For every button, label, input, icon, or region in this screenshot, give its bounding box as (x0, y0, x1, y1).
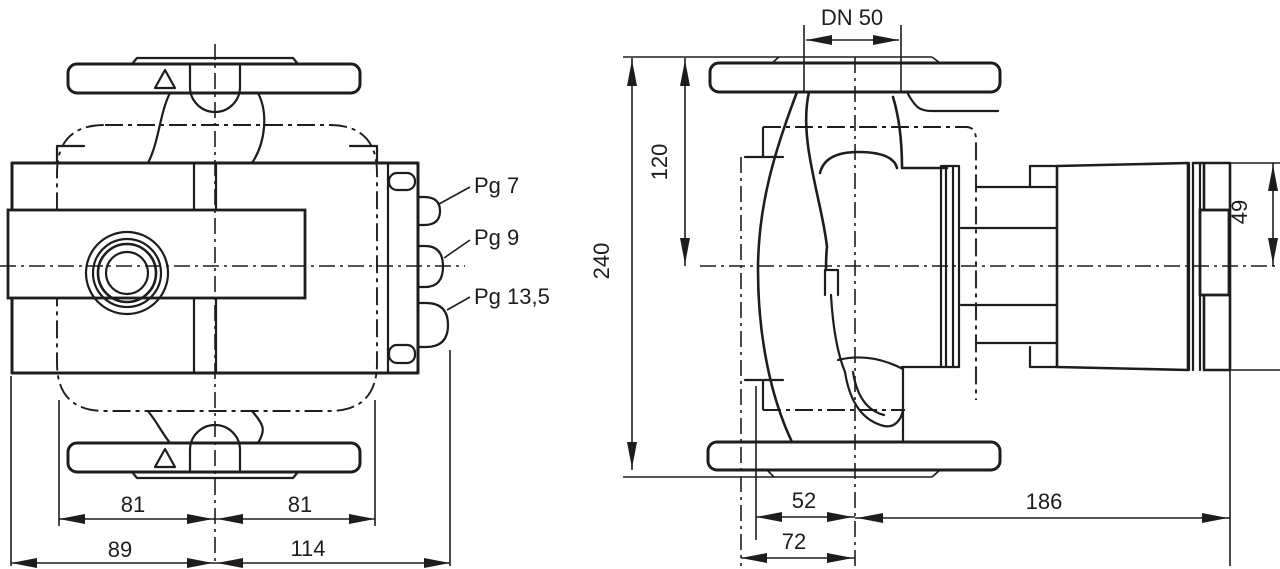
front-view: Pg 7 Pg 9 Pg 13,5 81 81 89 114 (0, 44, 550, 568)
dim-240: 240 (589, 58, 637, 470)
bottom-flange (708, 442, 1000, 470)
volute-clip (825, 270, 838, 295)
top-shell (68, 64, 360, 93)
label-pg9: Pg 9 (474, 225, 519, 250)
dim-52-text: 52 (792, 488, 816, 513)
pump-head-top (68, 58, 360, 163)
dim-dn50: DN 50 (804, 5, 901, 91)
neck-curve-bottom-left (148, 411, 170, 443)
dim-240-text: 240 (589, 243, 614, 280)
gland-slot-bottom (389, 345, 415, 363)
dim-89: 89 (108, 537, 132, 562)
leader-pg7 (439, 187, 470, 204)
neck-curve-left (148, 93, 170, 163)
technical-drawing-canvas: Pg 7 Pg 9 Pg 13,5 81 81 89 114 (0, 0, 1280, 569)
dim-114: 114 (290, 536, 325, 561)
side-flange-bottom (623, 442, 1000, 477)
volute-curves (758, 92, 947, 442)
dim-52-186-72: 52 186 72 (741, 386, 1230, 563)
side-centerlines (700, 57, 1277, 566)
cable-glands (418, 197, 448, 347)
label-pg7: Pg 7 (474, 173, 519, 198)
dim-186-text: 186 (1026, 489, 1063, 514)
pump-dimension-drawing: Pg 7 Pg 9 Pg 13,5 81 81 89 114 (0, 0, 1280, 569)
dim-49: 49 (1227, 163, 1278, 266)
flange-lip (908, 94, 998, 111)
front-dimensions: 81 81 89 114 (11, 350, 450, 568)
mounting-lug-left (57, 146, 84, 163)
direction-triangle-icon (155, 449, 175, 467)
mounting-lug-right (350, 146, 377, 163)
pump-head-bottom (68, 411, 360, 478)
dim-120: 120 (647, 58, 690, 266)
bottom-shell (68, 443, 360, 472)
label-pg135: Pg 13,5 (474, 284, 550, 309)
gland-pg135 (418, 303, 448, 347)
capacitor (1200, 210, 1229, 295)
leader-pg9 (444, 240, 470, 258)
side-view: DN 50 240 120 49 (589, 5, 1280, 566)
front-centerlines (0, 44, 465, 566)
neck-curve-bottom-right (252, 411, 263, 443)
dim-120-text: 120 (647, 144, 672, 181)
gland-pg7 (418, 197, 440, 225)
leader-pg135 (447, 297, 470, 310)
side-flange-top (623, 57, 1000, 111)
direction-triangle-icon (155, 70, 175, 88)
gland-slot-top (389, 173, 415, 190)
gland-labels: Pg 7 Pg 9 Pg 13,5 (439, 173, 550, 310)
dim-81-right: 81 (288, 492, 312, 517)
neck-curve-right (252, 93, 264, 163)
dim-72-text: 72 (782, 529, 806, 554)
dim-49-text: 49 (1227, 200, 1252, 224)
dim-81-left: 81 (121, 492, 145, 517)
dim-dn50-text: DN 50 (821, 5, 883, 30)
